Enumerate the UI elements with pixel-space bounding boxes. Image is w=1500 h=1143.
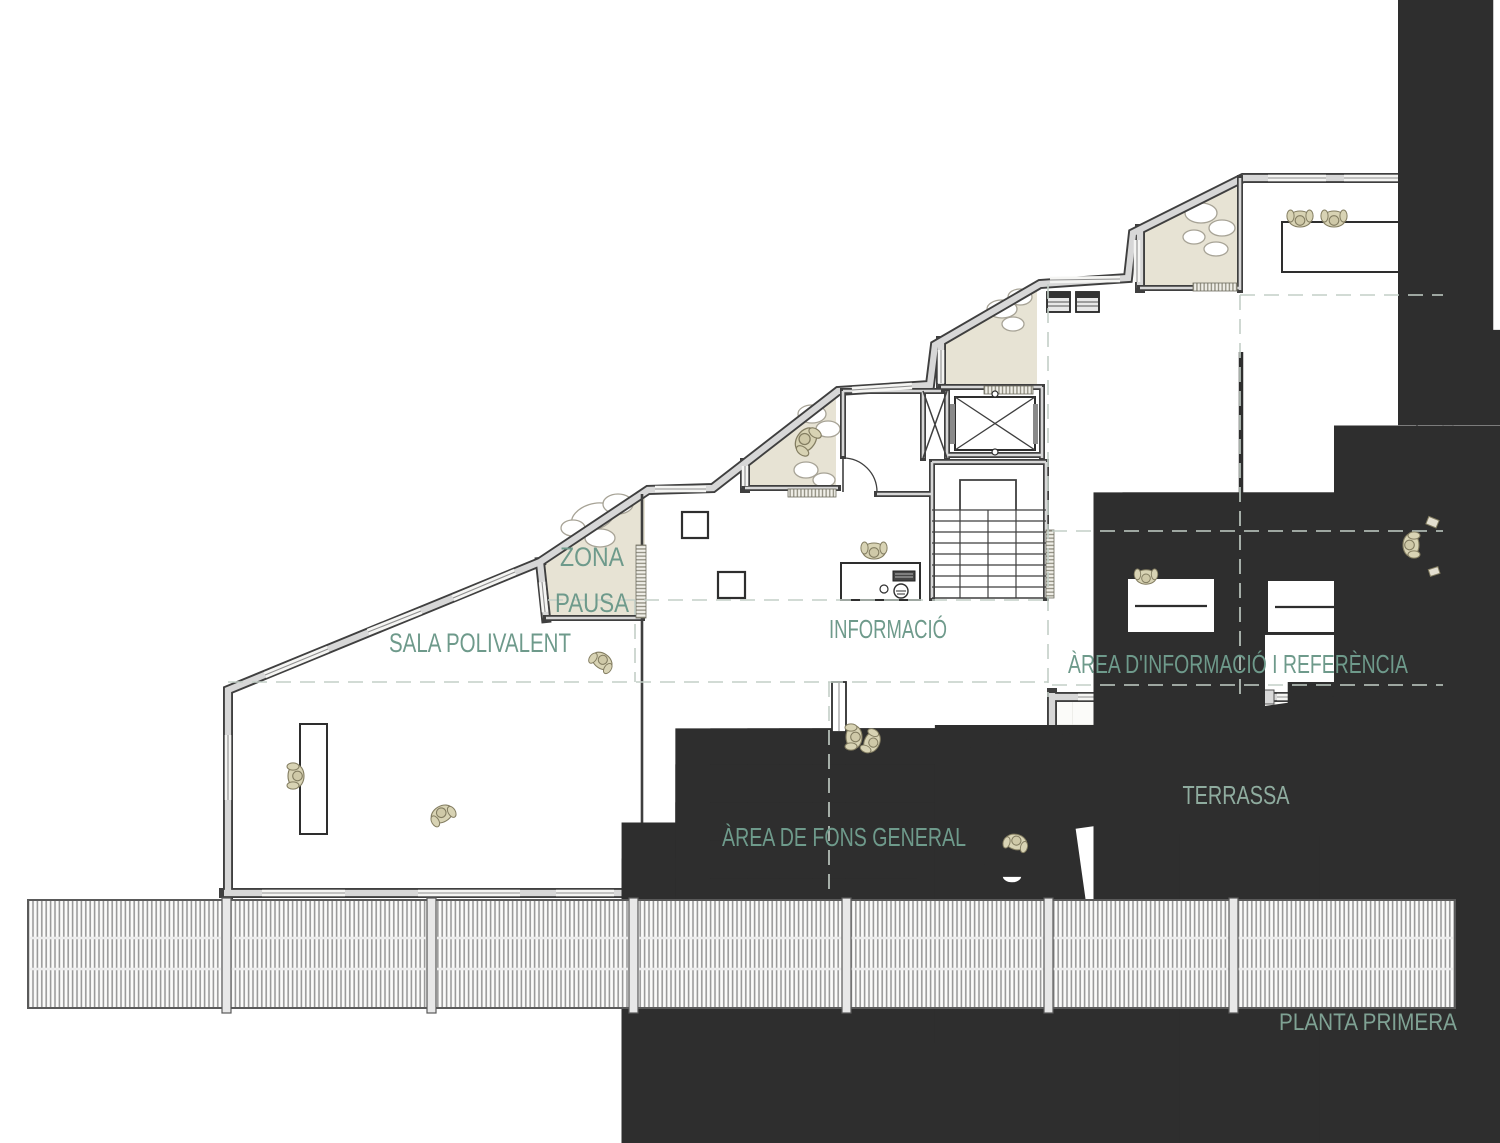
- deck-post: [842, 898, 851, 1013]
- label-info-referencia: ÀREA D'INFORMACIÓ I REFERÈNCIA: [1068, 649, 1408, 679]
- label-zona-pausa-1: ZONA: [560, 542, 624, 572]
- floor-plan-page: ZONA PAUSA SALA POLIVALENT INFORMACIÓ ÀR…: [0, 0, 1500, 1143]
- label-sala-polivalent: SALA POLIVALENT: [389, 628, 571, 658]
- deck-post: [427, 898, 436, 1013]
- deck-post: [1229, 898, 1238, 1013]
- floor-plan: ZONA PAUSA SALA POLIVALENT INFORMACIÓ ÀR…: [0, 0, 1500, 1143]
- label-informacio: INFORMACIÓ: [829, 614, 947, 644]
- door-arc: [843, 458, 877, 492]
- person-at-table: [1134, 569, 1158, 584]
- columns: [682, 512, 745, 598]
- label-terrassa: TERRASSA: [1183, 780, 1290, 810]
- person-lounge-1: [845, 724, 862, 750]
- person-audience: [427, 801, 458, 829]
- deck-band: [28, 898, 1455, 1013]
- reading-armchair: [1446, 0, 1500, 378]
- person-study-1: [1287, 210, 1313, 227]
- desk-computer: [893, 571, 915, 581]
- person-reading: [1403, 532, 1420, 558]
- stairs: [932, 480, 1046, 598]
- person-study-2: [1321, 210, 1347, 227]
- elevator-rail-right: [1033, 404, 1038, 444]
- shaft-x: [923, 391, 947, 458]
- vertical-core: [923, 391, 1046, 598]
- deck-post: [1044, 898, 1053, 1013]
- deck-post: [629, 898, 638, 1013]
- person-info-staff: [861, 542, 887, 559]
- person-walking: [587, 648, 617, 676]
- elevator-rail-left: [950, 404, 955, 444]
- label-fons-general: ÀREA DE FONS GENERAL: [722, 822, 966, 852]
- plan-title: PLANTA PRIMERA: [1279, 1009, 1457, 1036]
- person-presenter: [287, 763, 304, 789]
- label-zona-pausa-2: PAUSA: [555, 588, 629, 618]
- deck-post: [222, 898, 231, 1013]
